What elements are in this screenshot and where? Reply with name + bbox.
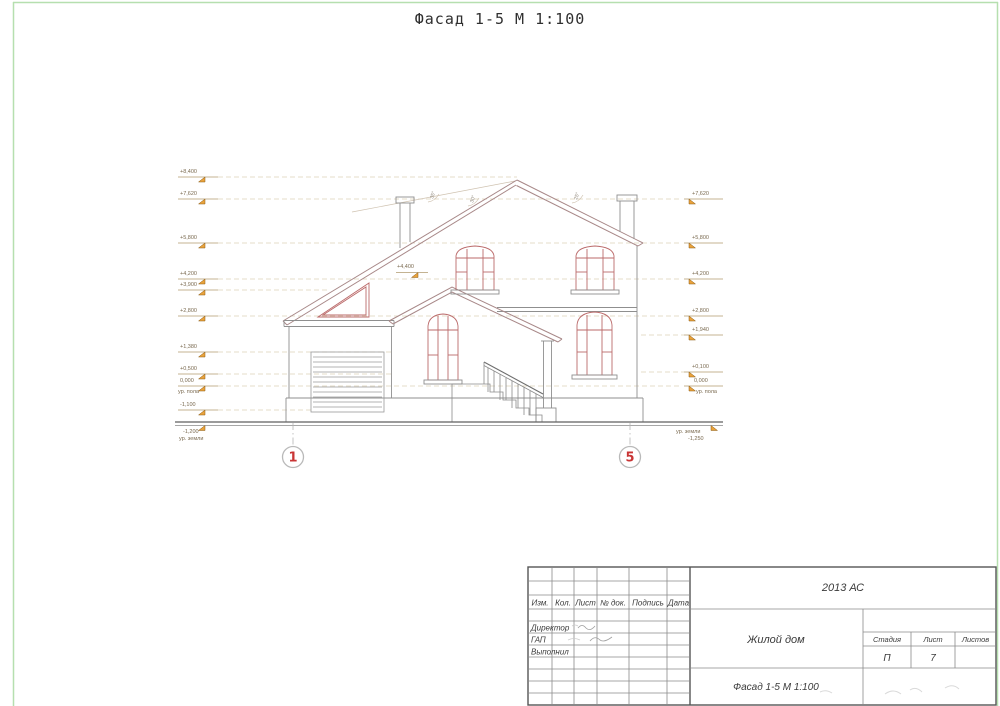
svg-text:0,000: 0,000 (694, 378, 708, 384)
house-elevation (175, 180, 723, 426)
elevation-mark: +7,620 (684, 191, 723, 204)
svg-text:+1,940: +1,940 (692, 327, 709, 333)
drawing-sheet: 35° 30° 25° +8,400 +7,620 +5,800 +4,200 … (0, 0, 1000, 706)
elevation-mark: +0,100 (684, 364, 723, 377)
svg-text:+0,100: +0,100 (692, 364, 709, 370)
sheet-name: Фасад 1-5 М 1:100 (733, 682, 819, 693)
elevation-mark: +1,380 (178, 344, 218, 357)
svg-text:+2,800: +2,800 (180, 308, 197, 314)
window-lower-right (572, 312, 617, 379)
stage-label: Стадия (873, 635, 901, 644)
elevation-mark: 0,000 ур. пола (684, 378, 723, 395)
role-director: Директор (530, 624, 570, 633)
elevation-marks-left: +8,400 +7,620 +5,800 +4,200 +3,900 +2,80… (178, 169, 218, 442)
svg-text:+4,200: +4,200 (692, 271, 709, 277)
col-list: Лист (574, 599, 596, 608)
elevation-mark: +3,900 (178, 282, 218, 295)
sheet-value: 7 (930, 653, 936, 664)
svg-text:ур. пола: ур. пола (178, 389, 200, 395)
elevation-mark: +1,940 (684, 327, 723, 340)
elevation-mark: 0,000 ур. пола (178, 378, 218, 395)
col-data: Дата (667, 599, 690, 608)
elevation-mark: +2,800 (684, 308, 723, 321)
elevation-mark: ур. земли -1,250 (676, 426, 718, 443)
svg-text:ур. земли: ур. земли (179, 436, 203, 442)
interior-elevation-mark: +4,400 (396, 264, 428, 278)
svg-text:+5,800: +5,800 (180, 235, 197, 241)
svg-text:ур. земли: ур. земли (676, 429, 700, 435)
role-gap: ГАП (531, 636, 546, 645)
porch-roof (389, 287, 562, 342)
chimney-left (396, 197, 414, 248)
page-frame (13, 2, 998, 706)
chimney-right (617, 195, 637, 239)
col-izm: Изм. (531, 599, 548, 608)
watermark-squiggles (820, 686, 959, 694)
title-block: Изм. Кол. Лист № док. Подпись Дата Дирек… (528, 567, 996, 705)
svg-text:+7,620: +7,620 (692, 191, 709, 197)
elevation-mark: +4,200 (684, 271, 723, 284)
col-podpis: Подпись (632, 599, 664, 608)
svg-text:+5,800: +5,800 (692, 235, 709, 241)
svg-text:+2,800: +2,800 (692, 308, 709, 314)
svg-text:+3,900: +3,900 (180, 282, 197, 288)
window-lower-left (424, 314, 462, 384)
axis-markers: 1 5 (283, 423, 641, 468)
main-roof (283, 180, 643, 325)
object-name: Жилой дом (746, 634, 805, 646)
svg-text:+4,200: +4,200 (180, 271, 197, 277)
axis-number-1: 1 (288, 451, 297, 466)
svg-text:+7,620: +7,620 (180, 191, 197, 197)
ground-line (175, 422, 723, 426)
role-executor: Выполнил (531, 648, 569, 657)
porch-column (536, 341, 556, 422)
svg-text:-1,250: -1,250 (688, 436, 704, 442)
elevation-mark: +5,800 (178, 235, 218, 248)
sheet-label: Лист (922, 635, 942, 644)
window-gable-triangle (318, 283, 369, 317)
svg-text:+8,400: +8,400 (180, 169, 197, 175)
elevation-marks-right: +7,620 +5,800 +4,200 +2,800 +1,940 +0,10… (676, 191, 723, 442)
elevation-mark: -1,100 (178, 402, 218, 415)
svg-text:-1,200: -1,200 (183, 429, 199, 435)
elevation-mark: +2,800 (178, 308, 218, 321)
svg-text:-1,100: -1,100 (180, 402, 196, 408)
window-upper-right (571, 246, 619, 294)
entrance-stairs (452, 362, 543, 422)
window-upper-left (451, 246, 499, 294)
elevation-mark: -1,200 ур. земли (179, 426, 205, 443)
svg-text:ур. пола: ур. пола (696, 389, 718, 395)
stage-value: П (883, 653, 891, 664)
elevation-mark: +5,800 (684, 235, 723, 248)
svg-text:+0,500: +0,500 (180, 366, 197, 372)
svg-text:+4,400: +4,400 (397, 264, 414, 270)
axis-number-5: 5 (625, 451, 634, 466)
svg-text:0,000: 0,000 (180, 378, 194, 384)
elevation-mark: +8,400 (178, 169, 218, 182)
garage-door (311, 352, 384, 412)
elevation-mark: +7,620 (178, 191, 218, 204)
sheets-label: Листов (961, 635, 989, 644)
col-doc: № док. (600, 599, 626, 608)
svg-text:+1,380: +1,380 (180, 344, 197, 350)
doc-code: 2013 АС (821, 582, 864, 594)
col-kol: Кол. (555, 599, 571, 608)
